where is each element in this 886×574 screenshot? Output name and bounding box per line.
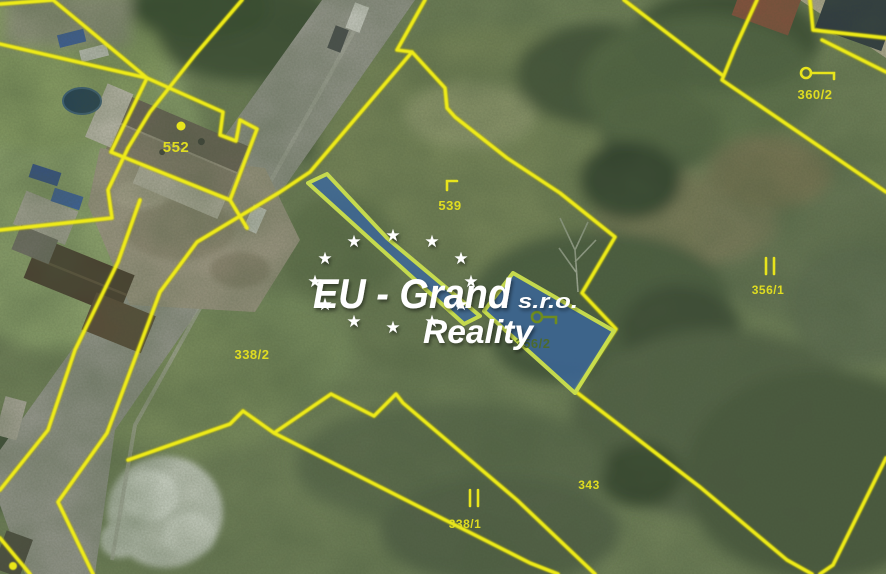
eu-star-icon: ★ xyxy=(424,232,439,252)
aerial-map-image[interactable]: 552 539 360/2 356/1 356/2 338/2 343 338/… xyxy=(0,0,886,574)
parcel-label-356-1: 356/1 xyxy=(752,283,785,297)
watermark-line2: Reality xyxy=(423,313,535,350)
eu-star-icon: ★ xyxy=(453,249,468,269)
watermark-legal-form: s.r.o. xyxy=(518,291,578,313)
parcel-label-338-2: 338/2 xyxy=(234,347,269,362)
map-canvas: 552 539 360/2 356/1 356/2 338/2 343 338/… xyxy=(0,0,886,574)
parcel-label-360-2: 360/2 xyxy=(797,87,832,102)
parcel-label-343: 343 xyxy=(578,478,600,492)
parcel-label-539: 539 xyxy=(438,198,461,213)
parcel-label-552: 552 xyxy=(163,139,190,156)
eu-star-icon: ★ xyxy=(385,318,400,338)
watermark-company: EU - Grand xyxy=(313,270,512,317)
boundary-dot-icon xyxy=(177,122,186,131)
parcel-label-338-1: 338/1 xyxy=(449,517,482,531)
eu-star-icon: ★ xyxy=(317,249,332,269)
boundary-dot xyxy=(9,562,17,570)
eu-star-icon: ★ xyxy=(346,232,361,252)
eu-star-icon: ★ xyxy=(385,226,400,246)
